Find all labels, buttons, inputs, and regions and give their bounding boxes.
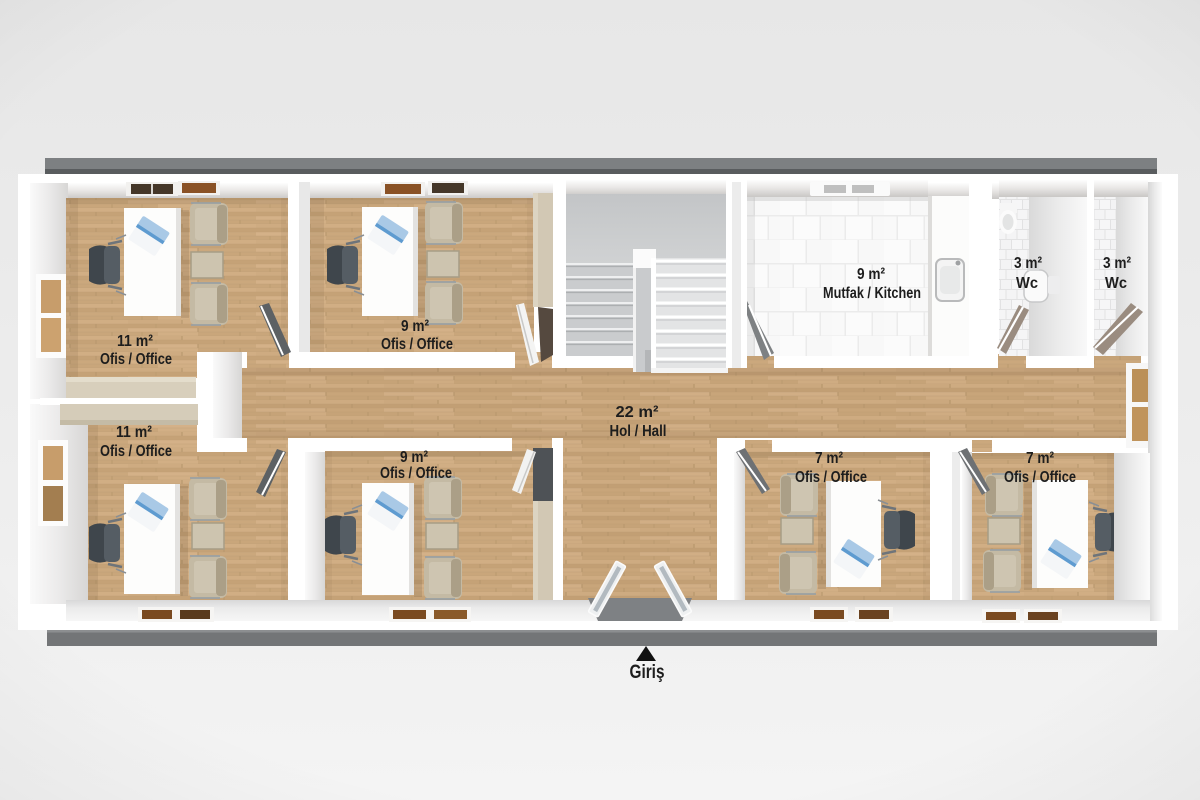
svg-text:11 m²: 11 m² [116, 424, 152, 441]
svg-text:Hol / Hall: Hol / Hall [610, 423, 667, 440]
svg-text:Ofis / Office: Ofis / Office [381, 336, 453, 353]
svg-text:Giriş: Giriş [630, 662, 665, 683]
svg-text:3 m²: 3 m² [1014, 255, 1042, 272]
svg-text:Ofis / Office: Ofis / Office [100, 351, 172, 368]
svg-text:Ofis / Office: Ofis / Office [100, 443, 172, 460]
svg-text:9 m²: 9 m² [401, 318, 429, 335]
svg-text:Mutfak / Kitchen: Mutfak / Kitchen [823, 285, 921, 302]
svg-text:7 m²: 7 m² [1026, 450, 1054, 467]
svg-text:9 m²: 9 m² [857, 266, 885, 283]
svg-text:3 m²: 3 m² [1103, 255, 1131, 272]
svg-text:11 m²: 11 m² [117, 333, 153, 350]
svg-text:9 m²: 9 m² [400, 449, 428, 466]
svg-text:Ofis / Office: Ofis / Office [795, 469, 867, 486]
svg-text:7 m²: 7 m² [815, 450, 843, 467]
svg-text:22 m²: 22 m² [616, 404, 659, 421]
svg-text:Ofis / Office: Ofis / Office [1004, 469, 1076, 486]
svg-text:Wc: Wc [1105, 275, 1127, 292]
svg-text:Wc: Wc [1016, 275, 1038, 292]
svg-text:Ofis / Office: Ofis / Office [380, 465, 452, 482]
